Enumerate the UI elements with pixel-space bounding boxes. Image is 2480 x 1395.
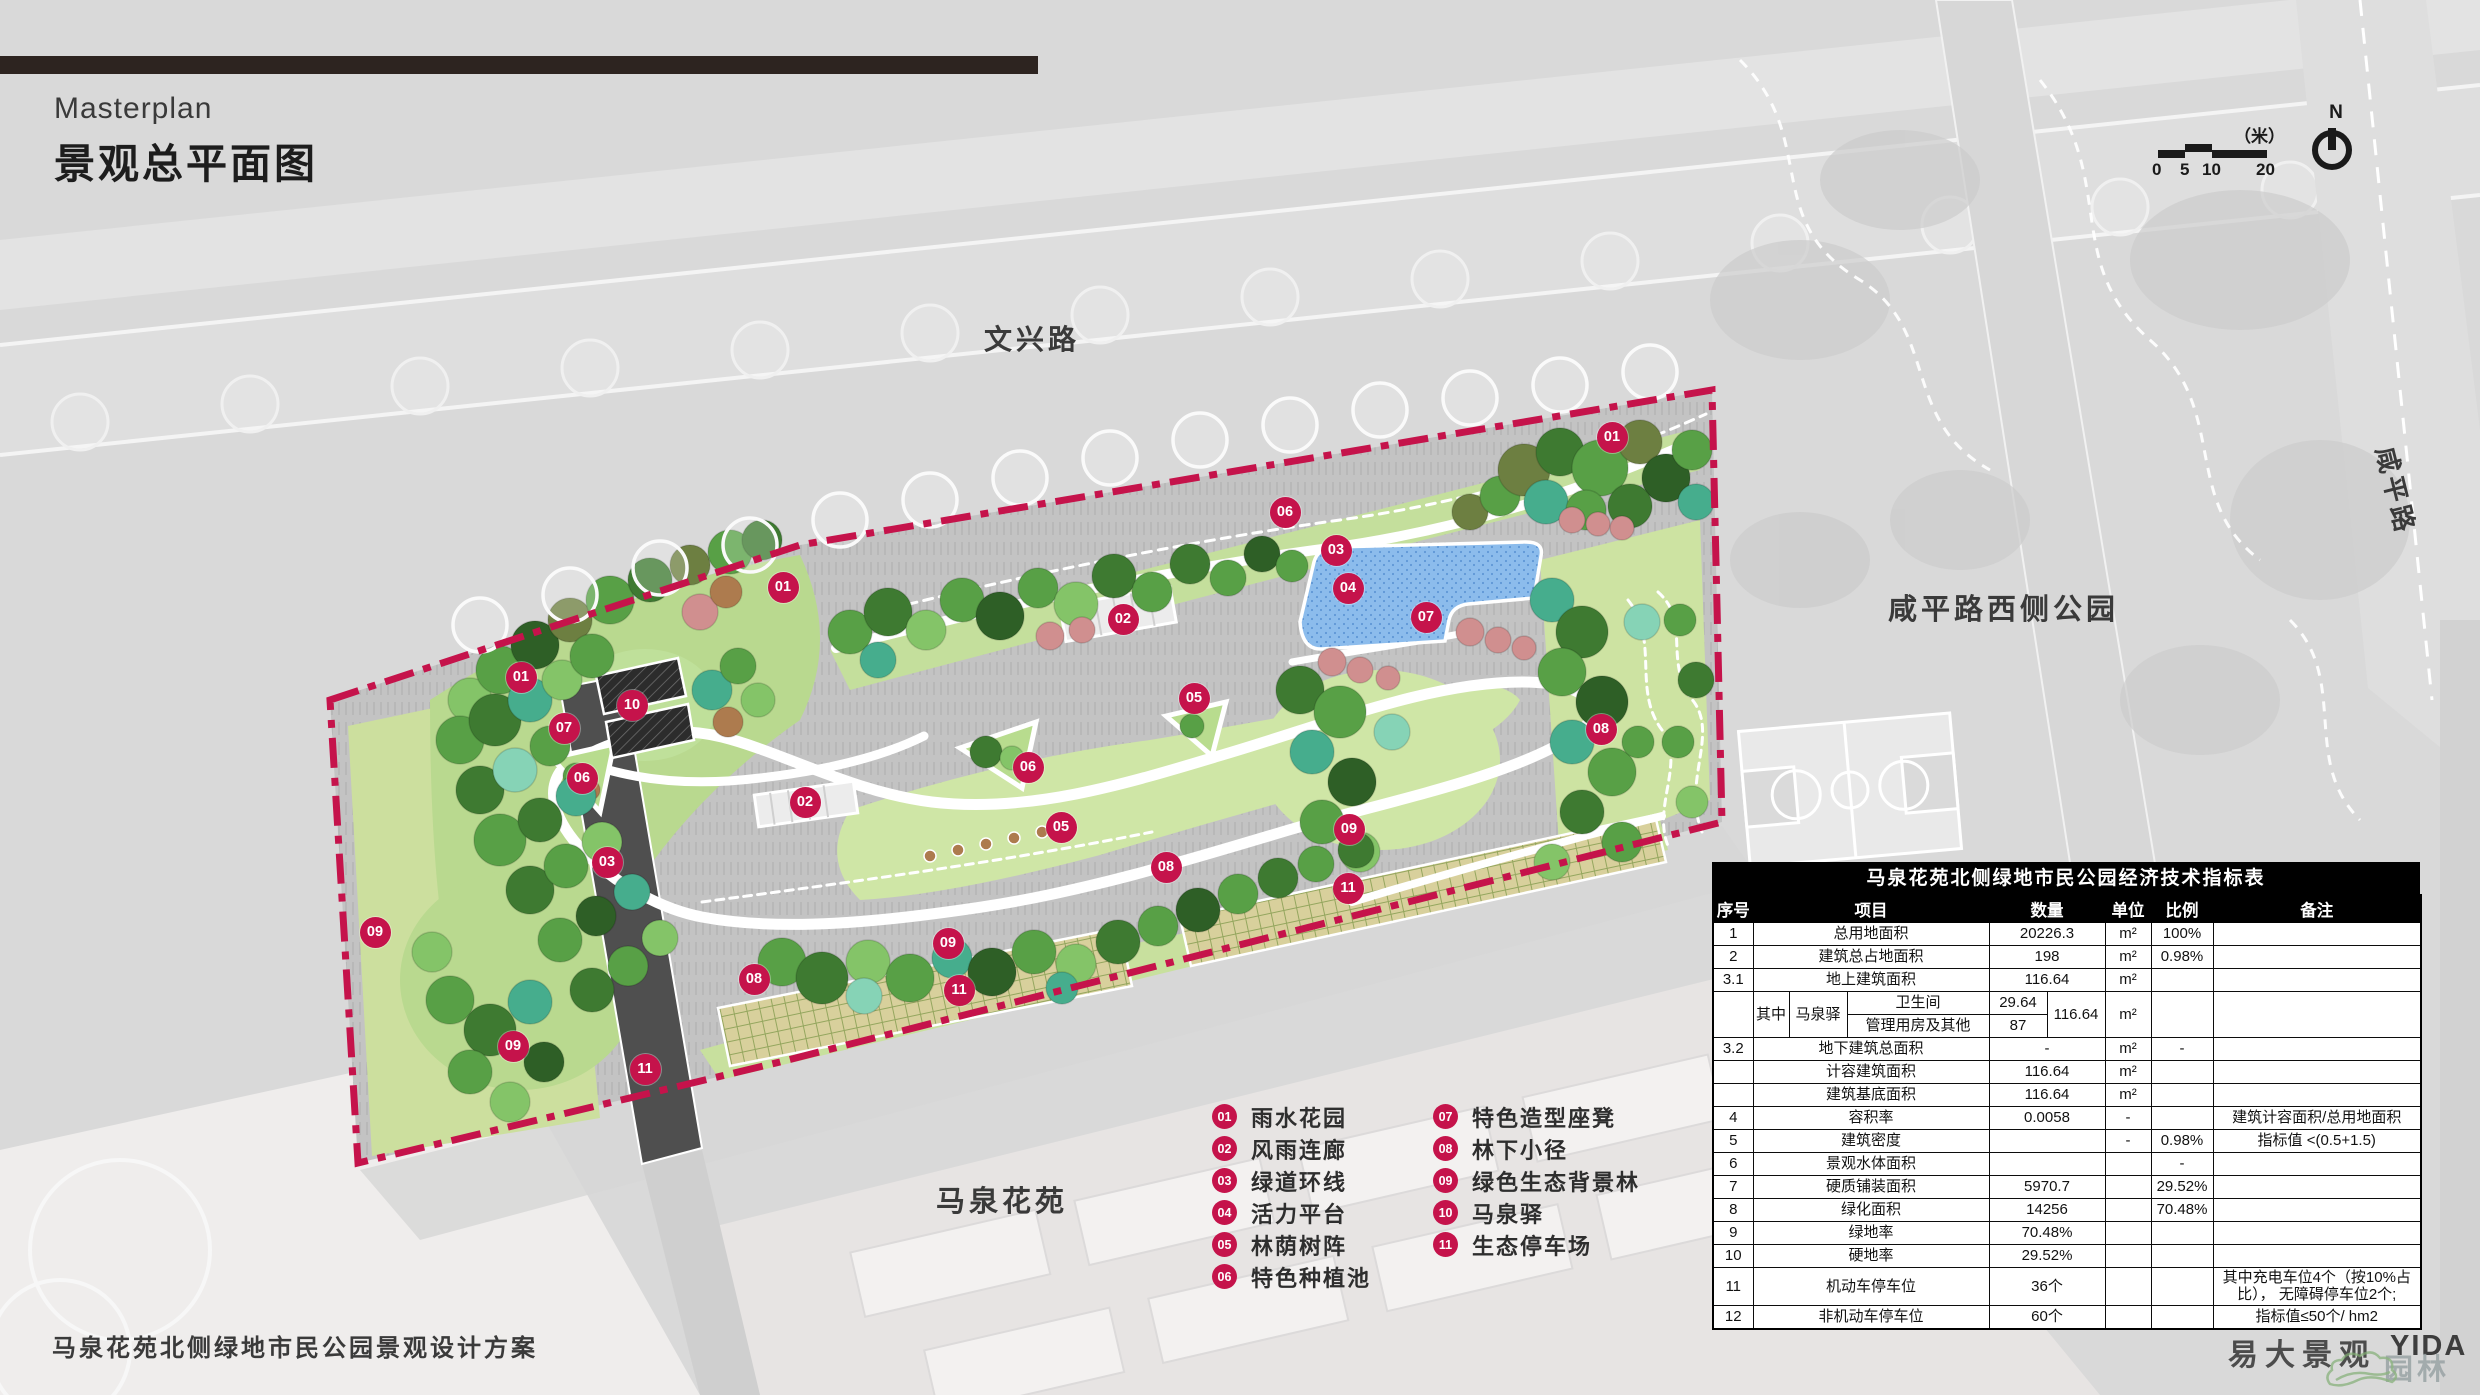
spec-cell	[2213, 1153, 2421, 1176]
legend-label: 绿道环线	[1251, 1165, 1347, 1197]
scale-tick: 10	[2202, 160, 2221, 180]
spec-cell: 0.98%	[2151, 1130, 2213, 1153]
spec-cell	[2151, 1305, 2213, 1329]
spec-cell	[2105, 1199, 2151, 1222]
spec-column-header: 数量	[1989, 895, 2105, 923]
spec-cell: -	[2105, 1107, 2151, 1130]
spec-row: 8绿化面积1425670.48%	[1713, 1199, 2421, 1222]
spec-row: 3.2地下建筑总面积-m²-	[1713, 1038, 2421, 1061]
spec-cell: 3.2	[1713, 1038, 1753, 1061]
plan-marker-09: 09	[933, 928, 964, 959]
spec-cell	[2213, 1038, 2421, 1061]
plan-marker-08: 08	[1586, 714, 1617, 745]
legend-number-badge: 02	[1212, 1136, 1237, 1161]
spec-cell: 建筑基底面积	[1753, 1084, 1989, 1107]
legend-item: 10马泉驿	[1433, 1200, 1640, 1225]
plan-marker-10: 10	[617, 690, 648, 721]
spec-cell: -	[2151, 1038, 2213, 1061]
masterplan-canvas: 0106030407020501011007060602080503090811…	[0, 0, 2480, 1395]
spec-table-title: 马泉花苑北侧绿地市民公园经济技术指标表	[1712, 862, 2420, 894]
spec-row: 其中马泉驿卫生间29.64116.64m²	[1713, 992, 2421, 1015]
north-arrow: N	[2306, 106, 2366, 182]
spec-cell: m²	[2105, 1061, 2151, 1084]
spec-cell: 绿化面积	[1753, 1199, 1989, 1222]
spec-cell	[2105, 1245, 2151, 1268]
spec-cell: 3.1	[1713, 969, 1753, 992]
spec-cell: 9	[1713, 1222, 1753, 1245]
spec-cell	[2151, 1084, 2213, 1107]
legend-label: 林下小径	[1472, 1133, 1568, 1165]
spec-row: 6景观水体面积-	[1713, 1153, 2421, 1176]
legend-label: 活力平台	[1251, 1197, 1347, 1229]
spec-cell: m²	[2105, 969, 2151, 992]
title-block: Masterplan 景观总平面图	[54, 92, 318, 190]
scale-segment	[2185, 144, 2212, 152]
spec-cell	[1713, 1084, 1753, 1107]
legend-number-badge: 01	[1212, 1104, 1237, 1129]
spec-cell: 其中	[1753, 992, 1789, 1038]
plan-marker-04: 04	[1333, 573, 1364, 604]
spec-cell: 70.48%	[2151, 1199, 2213, 1222]
spec-cell: 100%	[2151, 923, 2213, 946]
spec-cell: 非机动车停车位	[1753, 1305, 1989, 1329]
spec-cell	[2213, 1084, 2421, 1107]
legend-column-2: 07特色造型座凳08林下小径09绿色生态背景林10马泉驿11生态停车场	[1433, 1104, 1640, 1289]
project-name-footer: 马泉花苑北侧绿地市民公园景观设计方案	[52, 1328, 538, 1363]
scale-segment	[2158, 150, 2185, 158]
plan-marker-03: 03	[1321, 535, 1352, 566]
spec-cell	[1713, 1061, 1753, 1084]
spec-cell: 其中充电车位4个（按10%占比）， 无障碍停车位2个;	[2213, 1268, 2421, 1306]
spec-cell: 2	[1713, 946, 1753, 969]
road-label-wenxing: 文兴路	[984, 318, 1080, 358]
spec-cell	[2105, 1153, 2151, 1176]
scale-bar: （米） 0 5 10 20	[2148, 126, 2328, 182]
spec-cell: -	[2105, 1130, 2151, 1153]
spec-column-header: 备注	[2213, 895, 2421, 923]
spec-cell	[2151, 1245, 2213, 1268]
plan-marker-02: 02	[790, 787, 821, 818]
plan-marker-08: 08	[739, 964, 770, 995]
spec-cell: 11	[1713, 1268, 1753, 1306]
spec-cell	[2213, 1222, 2421, 1245]
scale-tick: 20	[2256, 160, 2275, 180]
plan-marker-09: 09	[498, 1031, 529, 1062]
spec-cell: m²	[2105, 923, 2151, 946]
legend-item: 09绿色生态背景林	[1433, 1168, 1640, 1193]
spec-cell: 指标值≤50个/ hm2	[2213, 1305, 2421, 1329]
spec-cell: 60个	[1989, 1305, 2105, 1329]
page-title-zh: 景观总平面图	[54, 130, 318, 190]
legend-number-badge: 03	[1212, 1168, 1237, 1193]
spec-row: 7硬质铺装面积5970.729.52%	[1713, 1176, 2421, 1199]
legend-label: 特色种植池	[1251, 1261, 1371, 1293]
spec-cell: 5970.7	[1989, 1176, 2105, 1199]
spec-cell: 36个	[1989, 1268, 2105, 1306]
legend-number-badge: 10	[1433, 1200, 1458, 1225]
spec-cell: 116.64	[1989, 1084, 2105, 1107]
plan-marker-07: 07	[549, 713, 580, 744]
legend-number-badge: 11	[1433, 1232, 1458, 1257]
plan-marker-11: 11	[630, 1054, 661, 1085]
plan-marker-09: 09	[1334, 814, 1365, 845]
spec-cell: 0.98%	[2151, 946, 2213, 969]
legend-label: 特色造型座凳	[1472, 1101, 1616, 1133]
plan-marker-11: 11	[1333, 873, 1364, 904]
spec-cell	[2151, 1107, 2213, 1130]
spec-cell: 景观水体面积	[1753, 1153, 1989, 1176]
spec-cell: 地下建筑总面积	[1753, 1038, 1989, 1061]
spec-cell	[2151, 1268, 2213, 1306]
spec-cell: 建筑密度	[1753, 1130, 1989, 1153]
spec-cell: -	[2151, 1153, 2213, 1176]
plan-marker-08: 08	[1151, 852, 1182, 883]
legend: 01雨水花园02风雨连廊03绿道环线04活力平台05林荫树阵06特色种植池 07…	[1212, 1104, 1640, 1289]
plan-marker-11: 11	[944, 975, 975, 1006]
park-label-xianping-west: 咸平路西侧公园	[1888, 586, 2119, 628]
legend-item: 03绿道环线	[1212, 1168, 1371, 1193]
legend-label: 风雨连廊	[1251, 1133, 1347, 1165]
legend-label: 林荫树阵	[1251, 1229, 1347, 1261]
plan-marker-07: 07	[1411, 602, 1442, 633]
legend-item: 04活力平台	[1212, 1200, 1371, 1225]
legend-column-1: 01雨水花园02风雨连廊03绿道环线04活力平台05林荫树阵06特色种植池	[1212, 1104, 1371, 1289]
spec-cell	[2105, 1268, 2151, 1306]
spec-cell: 116.64	[2047, 992, 2105, 1038]
legend-number-badge: 08	[1433, 1136, 1458, 1161]
scale-segment	[2212, 150, 2267, 158]
legend-number-badge: 06	[1212, 1264, 1237, 1289]
spec-cell: 10	[1713, 1245, 1753, 1268]
legend-item: 11生态停车场	[1433, 1232, 1640, 1257]
stock-watermark: 园林股份 股票代码:605303	[2340, 1346, 2480, 1395]
legend-number-badge: 07	[1433, 1104, 1458, 1129]
spec-cell: 硬地率	[1753, 1245, 1989, 1268]
spec-cell	[2213, 1199, 2421, 1222]
spec-row: 4容积率0.0058-建筑计容面积/总用地面积	[1713, 1107, 2421, 1130]
spec-column-header: 项目	[1753, 895, 1989, 923]
spec-table-panel: 马泉花苑北侧绿地市民公园经济技术指标表 序号项目数量单位比例备注1总用地面积20…	[1712, 862, 2420, 1330]
plan-marker-06: 06	[567, 763, 598, 794]
plan-marker-09: 09	[360, 917, 391, 948]
spec-cell: 198	[1989, 946, 2105, 969]
spec-cell: 87	[1989, 1015, 2047, 1038]
spec-cell: 管理用房及其他	[1847, 1015, 1989, 1038]
scale-unit-label: （米）	[2234, 122, 2285, 147]
scale-tick: 0	[2152, 160, 2161, 180]
spec-cell: 卫生间	[1847, 992, 1989, 1015]
cloud-icon	[2322, 1348, 2400, 1392]
spec-column-header: 比例	[2151, 895, 2213, 923]
plan-marker-01: 01	[506, 662, 537, 693]
north-label: N	[2306, 106, 2366, 120]
spec-cell	[1713, 992, 1753, 1038]
legend-number-badge: 05	[1212, 1232, 1237, 1257]
spec-cell	[2213, 1176, 2421, 1199]
spec-cell: 建筑总占地面积	[1753, 946, 1989, 969]
spec-cell: 5	[1713, 1130, 1753, 1153]
spec-cell: 总用地面积	[1753, 923, 1989, 946]
spec-cell: 容积率	[1753, 1107, 1989, 1130]
spec-cell	[1989, 1153, 2105, 1176]
spec-cell: 建筑计容面积/总用地面积	[2213, 1107, 2421, 1130]
legend-item: 05林荫树阵	[1212, 1232, 1371, 1257]
spec-cell: 12	[1713, 1305, 1753, 1329]
spec-row: 3.1地上建筑面积116.64m²	[1713, 969, 2421, 992]
spec-cell	[2213, 1245, 2421, 1268]
spec-cell: m²	[2105, 992, 2151, 1038]
plan-marker-03: 03	[592, 847, 623, 878]
spec-row: 计容建筑面积116.64m²	[1713, 1061, 2421, 1084]
spec-cell: m²	[2105, 1038, 2151, 1061]
spec-cell: 7	[1713, 1176, 1753, 1199]
title-rule-bar	[0, 56, 1038, 74]
residential-label-maquan: 马泉花苑	[936, 1178, 1068, 1220]
spec-cell: 绿地率	[1753, 1222, 1989, 1245]
spec-cell: 116.64	[1989, 969, 2105, 992]
spec-cell: 20226.3	[1989, 923, 2105, 946]
legend-number-badge: 09	[1433, 1168, 1458, 1193]
spec-cell	[2105, 1222, 2151, 1245]
spec-cell: m²	[2105, 1084, 2151, 1107]
legend-item: 01雨水花园	[1212, 1104, 1371, 1129]
spec-cell	[2151, 1061, 2213, 1084]
legend-label: 马泉驿	[1472, 1197, 1544, 1229]
spec-row: 建筑基底面积116.64m²	[1713, 1084, 2421, 1107]
spec-column-header: 序号	[1713, 895, 1753, 923]
plan-marker-01: 01	[768, 572, 799, 603]
spec-cell: 6	[1713, 1153, 1753, 1176]
spec-table: 序号项目数量单位比例备注1总用地面积20226.3m²100%2建筑总占地面积1…	[1712, 894, 2422, 1330]
north-arrow-icon	[2306, 120, 2358, 176]
spec-cell	[1989, 1130, 2105, 1153]
spec-header-row: 序号项目数量单位比例备注	[1713, 895, 2421, 923]
spec-cell: 指标值 <(0.5+1.5)	[2213, 1130, 2421, 1153]
legend-number-badge: 04	[1212, 1200, 1237, 1225]
spec-cell: 14256	[1989, 1199, 2105, 1222]
spec-cell: 70.48%	[1989, 1222, 2105, 1245]
spec-cell: 硬质铺装面积	[1753, 1176, 1989, 1199]
legend-item: 06特色种植池	[1212, 1264, 1371, 1289]
spec-cell	[2105, 1176, 2151, 1199]
spec-row: 12非机动车停车位60个指标值≤50个/ hm2	[1713, 1305, 2421, 1329]
spec-cell	[2213, 992, 2421, 1038]
spec-cell	[2213, 1061, 2421, 1084]
legend-label: 雨水花园	[1251, 1101, 1347, 1133]
legend-item: 08林下小径	[1433, 1136, 1640, 1161]
spec-cell: 地上建筑面积	[1753, 969, 1989, 992]
plan-marker-05: 05	[1179, 683, 1210, 714]
spec-cell	[2151, 1222, 2213, 1245]
spec-cell	[2105, 1305, 2151, 1329]
legend-label: 生态停车场	[1472, 1229, 1592, 1261]
plan-marker-01: 01	[1597, 422, 1628, 453]
plan-marker-06: 06	[1270, 497, 1301, 528]
spec-cell: 马泉驿	[1789, 992, 1847, 1038]
spec-cell: 29.52%	[2151, 1176, 2213, 1199]
spec-cell: 4	[1713, 1107, 1753, 1130]
spec-cell: 1	[1713, 923, 1753, 946]
plan-marker-05: 05	[1046, 812, 1077, 843]
spec-row: 5建筑密度-0.98%指标值 <(0.5+1.5)	[1713, 1130, 2421, 1153]
spec-cell: 机动车停车位	[1753, 1268, 1989, 1306]
spec-cell: -	[1989, 1038, 2105, 1061]
plan-marker-02: 02	[1108, 604, 1139, 635]
spec-cell: 0.0058	[1989, 1107, 2105, 1130]
legend-item: 02风雨连廊	[1212, 1136, 1371, 1161]
page-title-en: Masterplan	[54, 92, 318, 126]
spec-cell: 8	[1713, 1199, 1753, 1222]
spec-row: 9绿地率70.48%	[1713, 1222, 2421, 1245]
spec-cell: 29.64	[1989, 992, 2047, 1015]
spec-row: 1总用地面积20226.3m²100%	[1713, 923, 2421, 946]
spec-cell: 116.64	[1989, 1061, 2105, 1084]
spec-cell	[2151, 992, 2213, 1038]
spec-row: 10硬地率29.52%	[1713, 1245, 2421, 1268]
spec-row: 2建筑总占地面积198m²0.98%	[1713, 946, 2421, 969]
spec-cell: 29.52%	[1989, 1245, 2105, 1268]
spec-cell	[2213, 946, 2421, 969]
legend-item: 07特色造型座凳	[1433, 1104, 1640, 1129]
spec-column-header: 单位	[2105, 895, 2151, 923]
spec-row: 11机动车停车位36个其中充电车位4个（按10%占比）， 无障碍停车位2个;	[1713, 1268, 2421, 1306]
spec-cell: 计容建筑面积	[1753, 1061, 1989, 1084]
spec-cell: m²	[2105, 946, 2151, 969]
spec-cell	[2213, 969, 2421, 992]
spec-cell	[2151, 969, 2213, 992]
legend-label: 绿色生态背景林	[1472, 1165, 1640, 1197]
plan-marker-06: 06	[1013, 752, 1044, 783]
spec-cell	[2213, 923, 2421, 946]
scale-tick: 5	[2180, 160, 2189, 180]
